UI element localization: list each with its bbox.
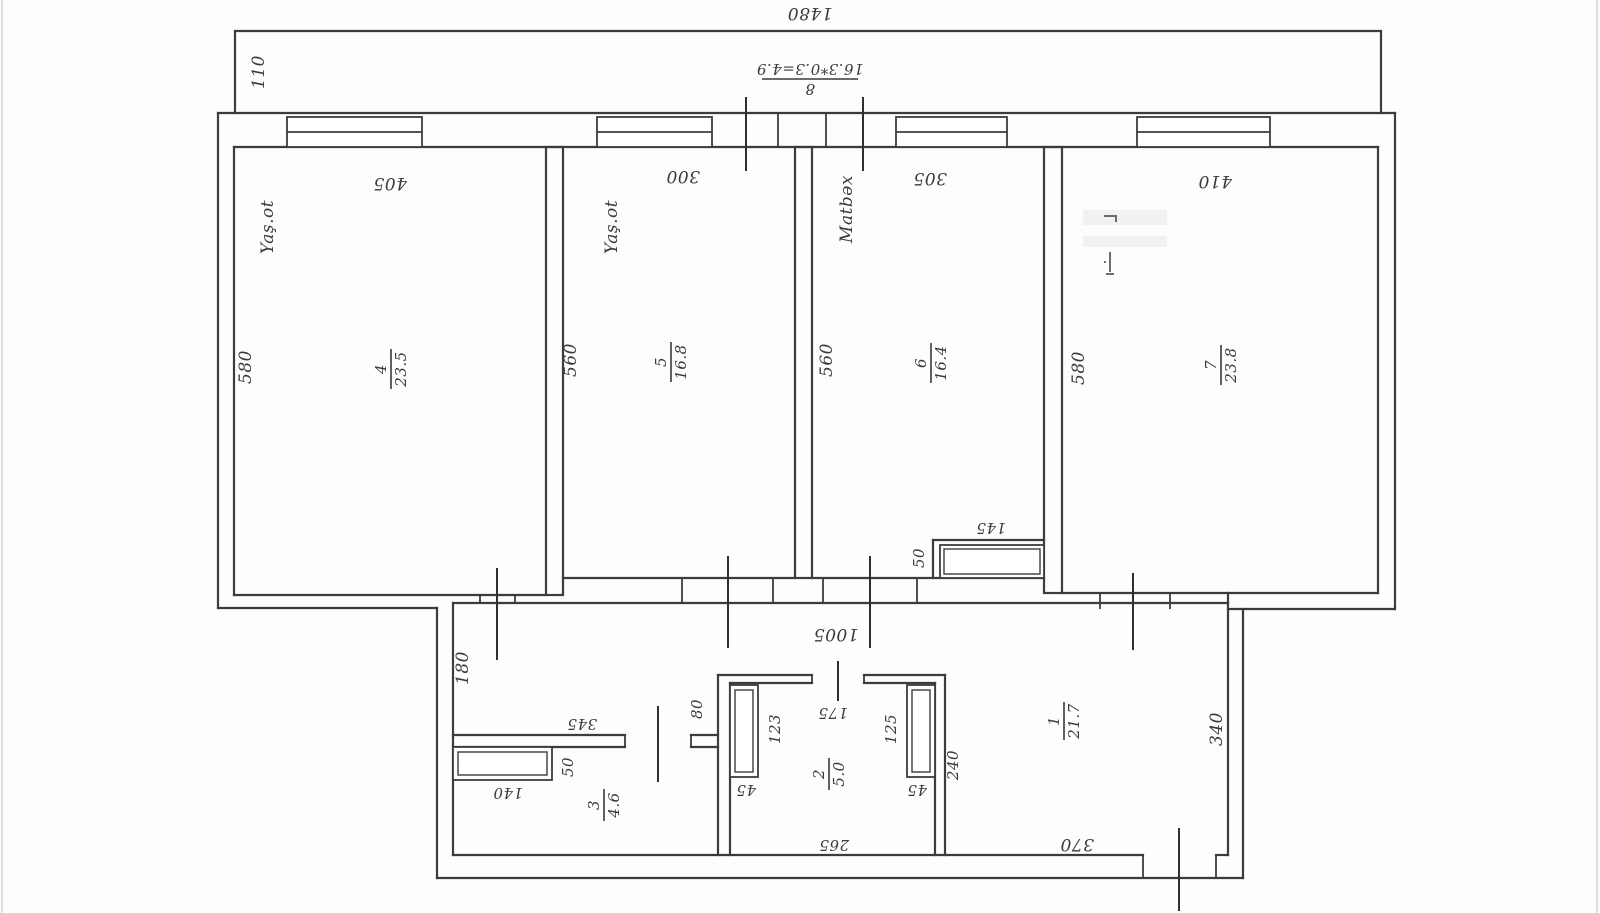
dim-total-width: 1480 [787, 3, 832, 23]
room7-number-area: 7 23.8 [1202, 345, 1240, 385]
svg-text:16.8: 16.8 [672, 344, 690, 379]
svg-text:5.0: 5.0 [830, 761, 848, 786]
room2-right-wall-dim: 240 [944, 750, 962, 781]
svg-text:560: 560 [817, 343, 837, 377]
room4-depth-dim: 580 [236, 350, 256, 384]
niche-width-dim: 145 [976, 519, 1006, 537]
svg-text:21.7: 21.7 [1065, 703, 1083, 739]
svg-text:7: 7 [1202, 360, 1220, 370]
svg-text:Yaş.ot: Yaş.ot [602, 200, 622, 254]
svg-text:5: 5 [652, 357, 670, 367]
svg-text:1005: 1005 [813, 624, 858, 644]
room3-closet-width-dim: 140 [493, 784, 523, 802]
interior-walls [234, 147, 1378, 878]
room5-depth-dim: 560 [561, 343, 581, 377]
svg-text:140: 140 [493, 784, 523, 802]
svg-text:23.8: 23.8 [1222, 347, 1240, 383]
svg-text:240: 240 [944, 750, 962, 781]
room1-number-area: 1 21.7 [1045, 702, 1083, 740]
window-room7 [1137, 117, 1270, 147]
dim-balcony-depth: 110 [249, 55, 269, 89]
window-room6 [896, 117, 1007, 147]
bath-left-fixture [730, 685, 758, 777]
window-room5 [597, 117, 712, 147]
floor-plan-drawing: 1480 16.3*0.3=4.9 8 110 Yaş.ot 405 580 4… [0, 0, 1600, 913]
room2-right-fixture-dim: 125 [882, 714, 900, 744]
room6-width-dim: 305 [913, 168, 947, 188]
room5-width-dim: 300 [666, 166, 700, 186]
svg-text:125: 125 [882, 714, 900, 744]
windows [287, 113, 1270, 147]
room4-number-area: 4 23.5 [372, 349, 410, 389]
svg-text:180: 180 [453, 651, 473, 685]
room4-name: Yaş.ot [258, 200, 278, 254]
svg-text:3: 3 [585, 800, 603, 810]
svg-text:410: 410 [1198, 171, 1233, 191]
svg-text:45: 45 [907, 781, 928, 799]
svg-text:6: 6 [912, 358, 930, 368]
room3-number-area: 3 4.6 [585, 789, 623, 821]
hall-width-dim: 1005 [813, 624, 858, 644]
room1-bottom-dim: 370 [1060, 834, 1094, 854]
svg-text:405: 405 [373, 173, 408, 193]
balcony-formula: 16.3*0.3=4.9 8 [756, 60, 863, 98]
room2-number-area: 2 5.0 [810, 758, 848, 790]
room3-top-dim: 345 [567, 715, 597, 733]
svg-text:45: 45 [736, 781, 757, 799]
room3-closet-depth-dim: 50 [559, 757, 577, 777]
svg-text:Yaş.ot: Yaş.ot [258, 200, 278, 254]
bath-right-fixture [907, 685, 935, 777]
room2-right-gap-dim: 45 [907, 781, 928, 799]
svg-text:110: 110 [249, 55, 269, 89]
svg-text:265: 265 [819, 836, 850, 854]
svg-text:1480: 1480 [787, 3, 832, 23]
svg-text:300: 300 [666, 166, 700, 186]
room6-number-area: 6 16.4 [912, 343, 950, 383]
svg-text:145: 145 [976, 519, 1006, 537]
svg-text:4.6: 4.6 [605, 792, 623, 818]
room2-top-dim: 175 [818, 704, 848, 722]
room6-depth-dim: 560 [817, 343, 837, 377]
room4-width-dim: 405 [373, 173, 408, 193]
svg-text:370: 370 [1060, 834, 1094, 854]
room2-bottom-dim: 265 [819, 836, 850, 854]
svg-text:340: 340 [1207, 712, 1227, 746]
svg-text:560: 560 [561, 343, 581, 377]
room7-depth-dim: 580 [1069, 351, 1089, 385]
formula-bottom-text: 8 [805, 80, 815, 98]
room7-width-dim: 410 [1198, 171, 1233, 191]
svg-text:80: 80 [688, 699, 706, 719]
svg-text:175: 175 [818, 704, 848, 722]
room2-left-gap-dim: 45 [736, 781, 757, 799]
room5-name: Yaş.ot [602, 200, 622, 254]
svg-text:50: 50 [559, 757, 577, 777]
room1-right-dim: 340 [1207, 712, 1227, 746]
room6-name: Matbəx [837, 175, 857, 244]
svg-text:Matbəx: Matbəx [837, 175, 857, 244]
floor-plan-page: 1480 16.3*0.3=4.9 8 110 Yaş.ot 405 580 4… [0, 0, 1600, 913]
svg-text:4: 4 [372, 364, 390, 375]
formula-top-text: 16.3*0.3=4.9 [756, 60, 863, 78]
niche-depth-dim: 50 [910, 548, 928, 568]
erased-label-smudge [1083, 210, 1167, 274]
svg-text:23.5: 23.5 [392, 351, 410, 387]
svg-text:580: 580 [236, 350, 256, 384]
svg-text:1: 1 [1045, 716, 1063, 726]
hall-shaft-dim: 80 [688, 699, 706, 719]
exterior-walls [218, 113, 1395, 878]
svg-text:16.4: 16.4 [932, 345, 950, 380]
svg-text:2: 2 [810, 769, 828, 780]
balcony-door [746, 113, 863, 147]
closet-room3 [453, 747, 552, 780]
svg-text:123: 123 [766, 714, 784, 744]
room5-number-area: 5 16.8 [652, 342, 690, 382]
room2-left-fixture-dim: 123 [766, 714, 784, 744]
svg-text:305: 305 [913, 168, 947, 188]
hall-left-depth-dim: 180 [453, 651, 473, 685]
svg-text:580: 580 [1069, 351, 1089, 385]
window-room4 [287, 117, 422, 147]
kitchen-niche-counter [940, 545, 1044, 578]
svg-text:345: 345 [567, 715, 597, 733]
svg-text:50: 50 [910, 548, 928, 568]
